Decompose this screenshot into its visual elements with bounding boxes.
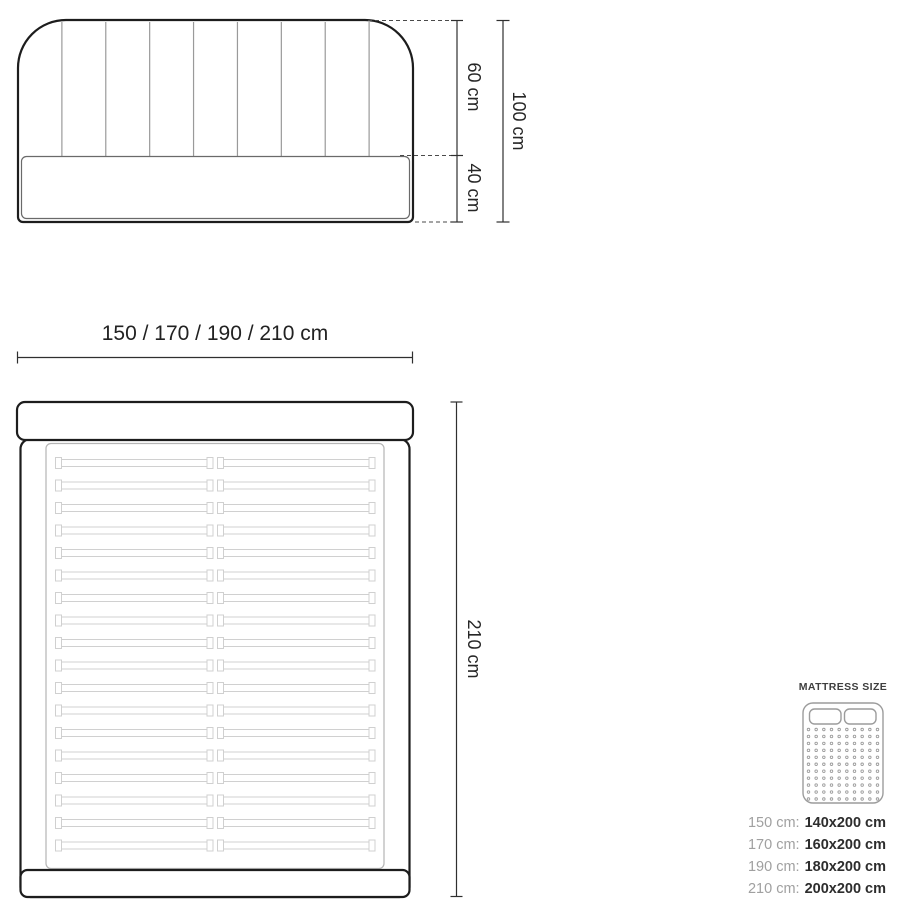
headboard-channel-lines xyxy=(62,22,369,156)
bed-dimension-diagram: 60 cm 40 cm 100 cm 210 cm 150 / 170 / 19… xyxy=(0,0,900,920)
headboard-front-view xyxy=(18,20,510,222)
mattress-size-value: 160x200 cm xyxy=(805,837,886,853)
dim-label-headboard-upper: 60 cm xyxy=(464,37,484,137)
headboard-bar-top-view xyxy=(17,402,413,440)
mattress-size-value: 200x200 cm xyxy=(805,881,886,897)
bed-base-front xyxy=(22,157,410,219)
mattress-icon-pillow-left xyxy=(810,709,842,724)
mattress-icon-pillow-right xyxy=(845,709,877,724)
bed-width-label: 150 cm: xyxy=(748,815,800,831)
mattress-size-table: 150 cm: 140x200 cm 170 cm: 160x200 cm 19… xyxy=(734,815,886,903)
mattress-size-row: 210 cm: 200x200 cm xyxy=(734,881,886,903)
dim-label-length: 210 cm xyxy=(464,599,484,699)
width-dimension-line xyxy=(17,352,413,364)
bed-width-label: 170 cm: xyxy=(748,837,800,853)
mattress-icon xyxy=(803,703,883,803)
mattress-size-row: 190 cm: 180x200 cm xyxy=(734,859,886,881)
mattress-size-row: 150 cm: 140x200 cm xyxy=(734,815,886,837)
bed-top-view xyxy=(17,402,463,897)
dim-label-base-height: 40 cm xyxy=(464,138,484,238)
mattress-size-value: 140x200 cm xyxy=(805,815,886,831)
bed-width-label: 190 cm: xyxy=(748,859,800,875)
mattress-size-value: 180x200 cm xyxy=(805,859,886,875)
bed-width-label: 210 cm: xyxy=(748,881,800,897)
diagram-linework xyxy=(0,0,900,920)
dim-label-total-height: 100 cm xyxy=(509,71,529,171)
footboard-bar-top-view xyxy=(21,870,410,897)
dim-label-widths: 150 / 170 / 190 / 210 cm xyxy=(15,322,415,346)
mattress-size-row: 170 cm: 160x200 cm xyxy=(734,837,886,859)
length-dimension-line xyxy=(451,402,463,897)
mattress-size-title: MATTRESS SIZE xyxy=(783,681,900,693)
